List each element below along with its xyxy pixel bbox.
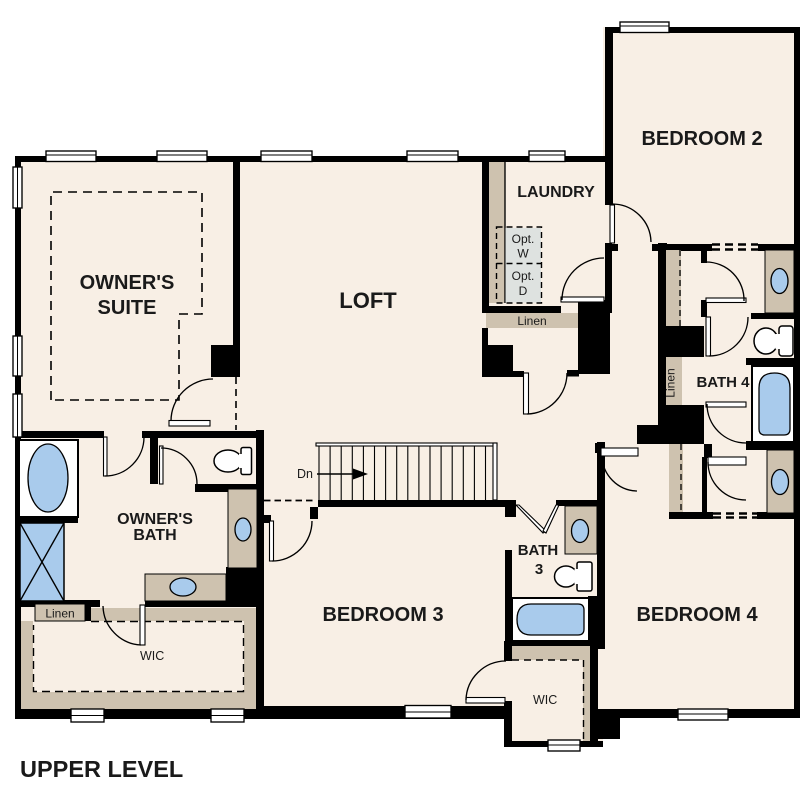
svg-text:UPPER LEVEL: UPPER LEVEL [20,756,183,782]
svg-text:OWNER'S: OWNER'S [80,272,175,294]
svg-text:D: D [519,284,528,298]
svg-text:WIC: WIC [140,649,164,663]
svg-text:BEDROOM 2: BEDROOM 2 [641,128,762,150]
svg-text:W: W [517,247,529,261]
svg-text:LOFT: LOFT [339,288,397,313]
svg-text:BEDROOM 4: BEDROOM 4 [636,604,758,626]
svg-text:BATH: BATH [133,527,176,544]
svg-text:LAUNDRY: LAUNDRY [517,184,595,201]
svg-text:BATH 4: BATH 4 [696,374,750,391]
svg-text:SUITE: SUITE [98,297,157,319]
svg-text:OWNER'S: OWNER'S [117,511,193,528]
svg-text:Linen: Linen [517,314,546,328]
svg-text:Dn: Dn [297,467,313,481]
svg-text:BEDROOM 3: BEDROOM 3 [322,604,443,626]
svg-text:BATH: BATH [518,542,559,559]
svg-text:Linen: Linen [45,607,74,621]
svg-text:Linen: Linen [664,368,678,397]
svg-text:Opt.: Opt. [512,232,535,246]
svg-text:WIC: WIC [533,693,557,707]
svg-text:3: 3 [535,561,543,578]
svg-text:Opt.: Opt. [512,269,535,283]
